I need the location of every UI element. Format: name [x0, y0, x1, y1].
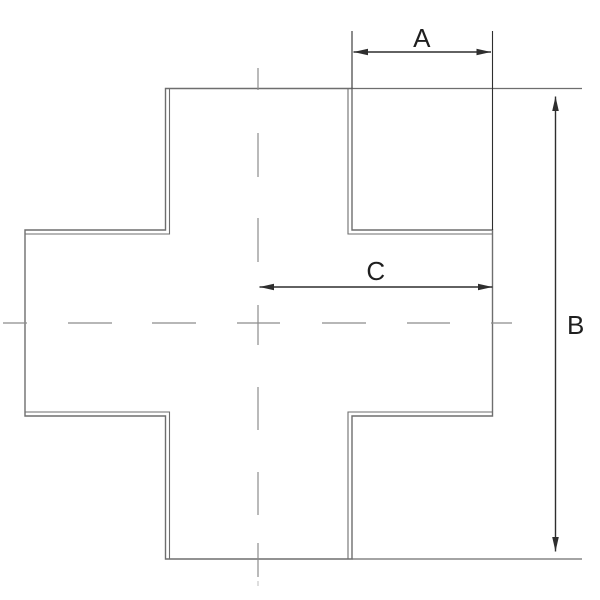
dim-b-arrow-top — [552, 97, 559, 112]
dim-b-arrow-bottom — [552, 537, 559, 552]
dim-c-arrow-right — [478, 284, 493, 290]
dim-c-arrow-left — [260, 284, 275, 290]
dimension-b: B — [552, 97, 585, 552]
cross-outer-outline — [25, 89, 493, 560]
drawing-canvas: A B C — [0, 0, 600, 600]
drawing-sheet: A B C — [0, 0, 600, 600]
dimension-a: A — [352, 23, 493, 230]
dim-a-arrow-right — [477, 49, 492, 56]
dimension-c: C — [260, 256, 493, 290]
cross-inner-wall-lines — [25, 89, 493, 560]
dim-a-label: A — [413, 23, 431, 53]
dim-b-label: B — [567, 310, 585, 340]
dim-c-label: C — [366, 256, 385, 286]
cross-part — [25, 89, 582, 560]
dim-a-arrow-left — [354, 49, 369, 56]
centerlines — [3, 68, 512, 586]
